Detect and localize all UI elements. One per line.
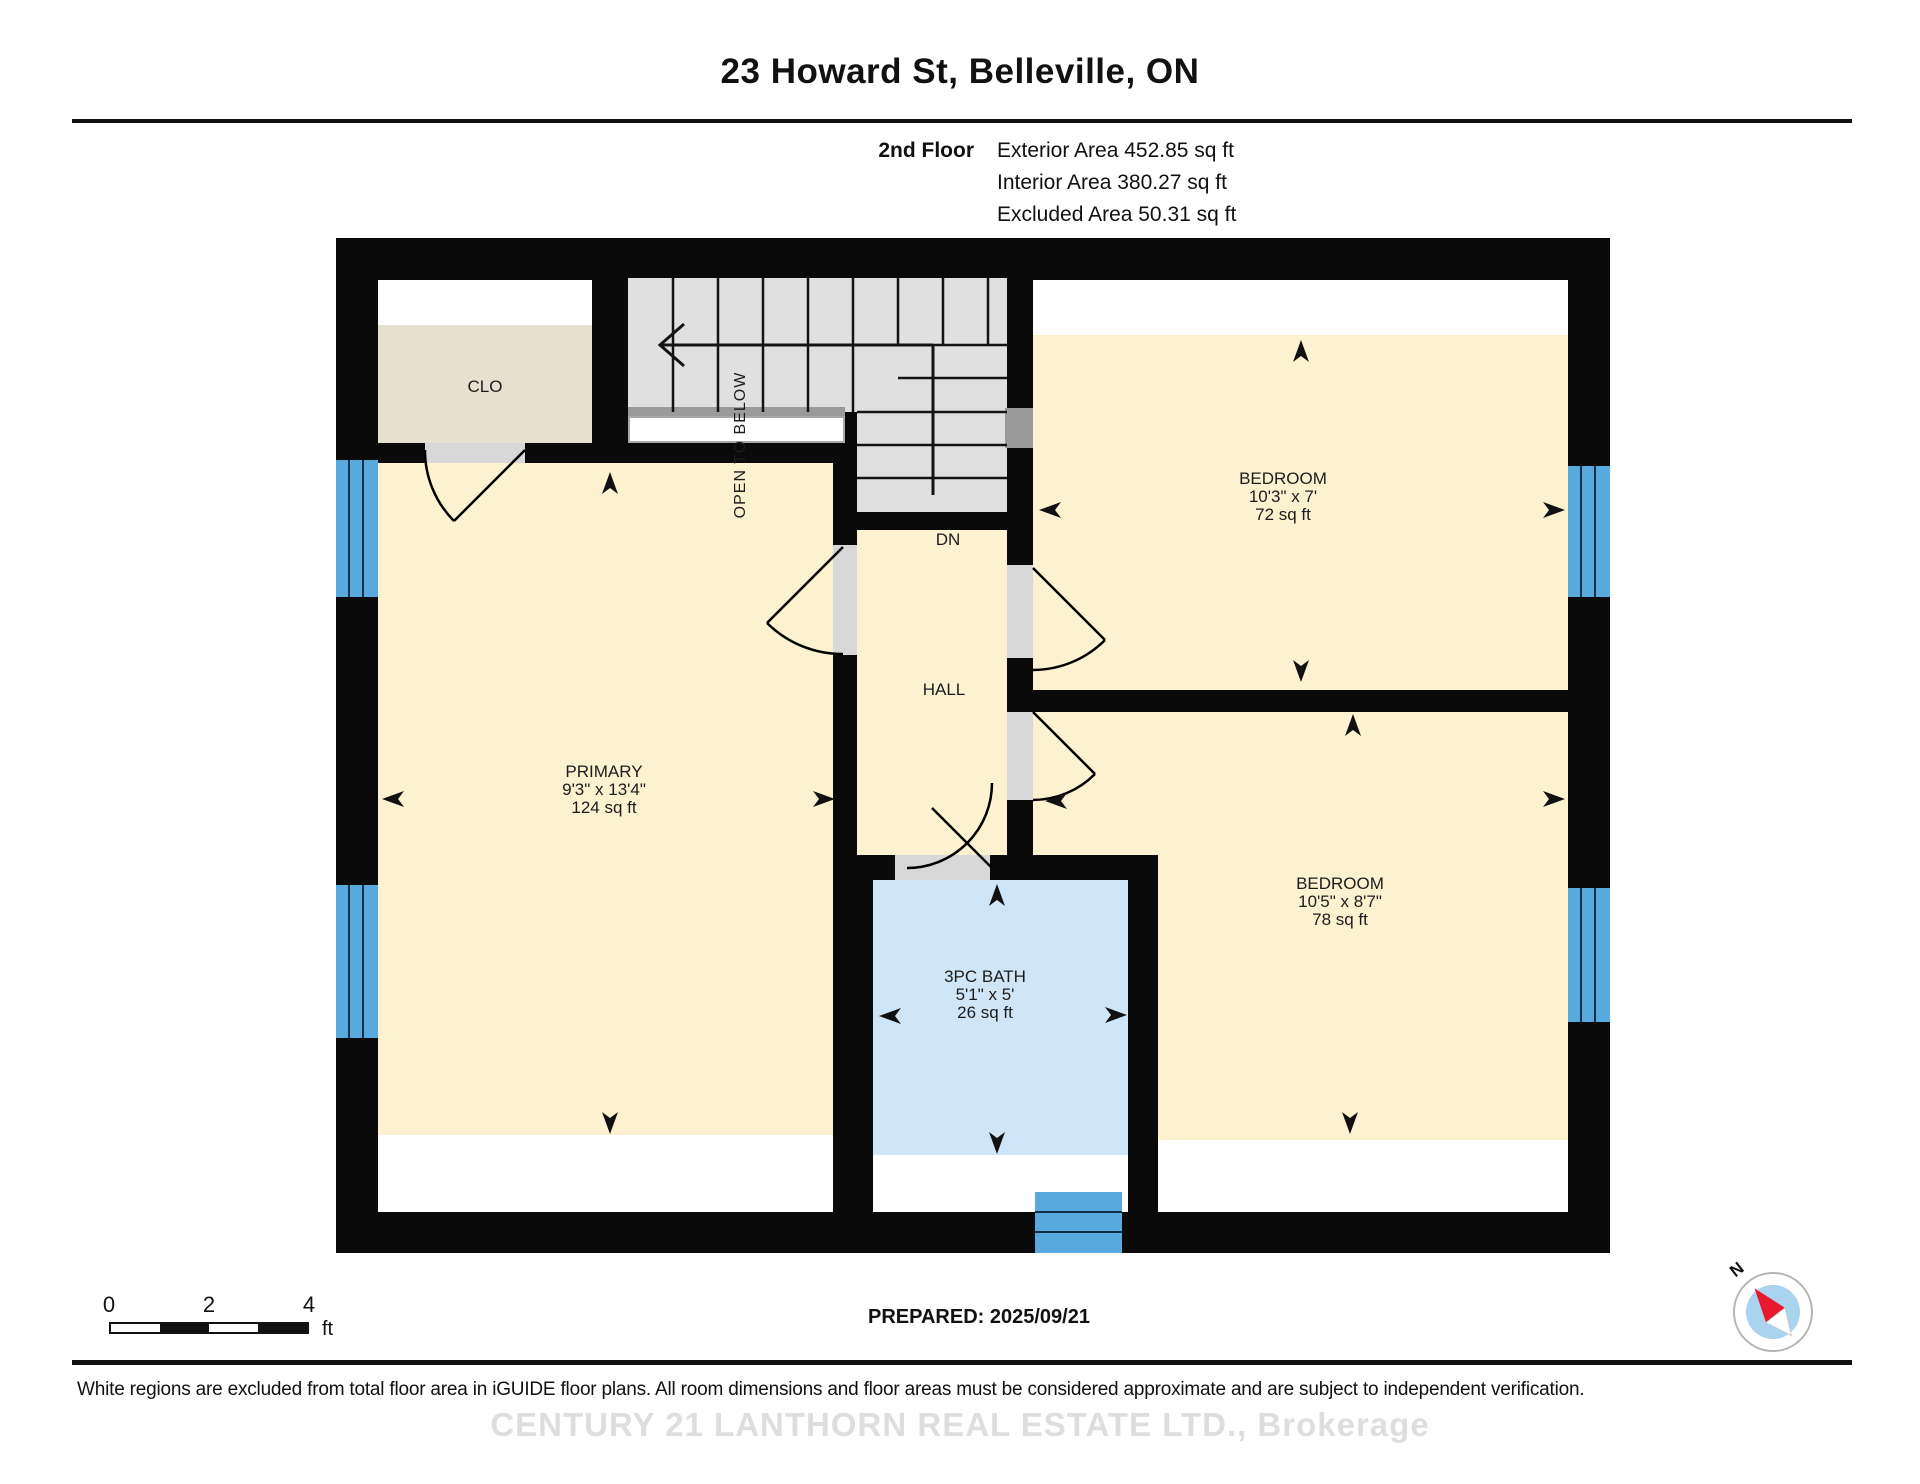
primary-arrow-down: [602, 1112, 618, 1134]
primary-room-name: PRIMARY: [504, 763, 704, 781]
measurement-arrows: [382, 340, 1565, 1154]
brokerage-watermark: CENTURY 21 LANTHORN REAL ESTATE LTD., Br…: [0, 1406, 1920, 1444]
bath-arrow-down: [989, 1132, 1005, 1154]
footer-divider: [72, 1360, 1852, 1365]
prepared-date: PREPARED: 2025/09/21: [868, 1306, 1090, 1329]
bath-door-arc: [907, 783, 992, 868]
primary-arrow-right: [813, 791, 835, 807]
scale-unit: ft: [322, 1318, 333, 1341]
label-hall: HALL: [894, 681, 994, 699]
stair-walk-line: [660, 324, 933, 495]
header-divider: [72, 119, 1852, 123]
primary-room-area: 124 sq ft: [504, 799, 704, 817]
bedroom-top-dims: 10'3" x 7': [1183, 488, 1383, 506]
interior-area-text: Interior Area 380.27 sq ft: [997, 171, 1227, 195]
excluded-area-text: Excluded Area 50.31 sq ft: [997, 203, 1236, 227]
bedroom-top-arrow-down: [1293, 660, 1309, 682]
compass: N: [1733, 1272, 1813, 1352]
label-primary: PRIMARY 9'3" x 13'4" 124 sq ft: [504, 763, 704, 817]
bath-name: 3PC BATH: [885, 968, 1085, 986]
disclaimer-text: White regions are excluded from total fl…: [77, 1379, 1637, 1401]
bath-area: 26 sq ft: [885, 1004, 1085, 1022]
scale-tick-0: 0: [94, 1292, 124, 1318]
bath-dims: 5'1" x 5': [885, 986, 1085, 1004]
primary-arrow-up: [602, 472, 618, 494]
bath-arrow-right: [1105, 1007, 1127, 1023]
scale-bar: 0 2 4 ft: [96, 1292, 396, 1364]
label-open-to-below: OPEN TO BELOW: [732, 355, 750, 535]
primary-arrow-left: [382, 791, 404, 807]
bath-arrow-up: [989, 884, 1005, 906]
label-bedroom-bottom: BEDROOM 10'5" x 8'7" 78 sq ft: [1240, 875, 1440, 929]
bedroom-top-name: BEDROOM: [1183, 470, 1383, 488]
exterior-area-text: Exterior Area 452.85 sq ft: [997, 139, 1234, 163]
bedroom-bottom-dims: 10'5" x 8'7": [1240, 893, 1440, 911]
bedroom-top-arrow-left: [1039, 502, 1061, 518]
floor-label: 2nd Floor: [860, 139, 974, 163]
bedroom-bottom-arrow-up: [1345, 714, 1361, 736]
label-closet: CLO: [435, 378, 535, 396]
bedroom-top-area: 72 sq ft: [1183, 506, 1383, 524]
primary-room-dims: 9'3" x 13'4": [504, 781, 704, 799]
compass-needle-icon: [1733, 1272, 1813, 1352]
primary-door-arc: [767, 547, 843, 654]
scale-tick-2: 2: [194, 1292, 224, 1318]
bedroom-top-arrow-right: [1543, 502, 1565, 518]
bedroom-bottom-area: 78 sq ft: [1240, 911, 1440, 929]
label-bath: 3PC BATH 5'1" x 5' 26 sq ft: [885, 968, 1085, 1022]
bedroom-bottom-name: BEDROOM: [1240, 875, 1440, 893]
bedroom-top-door-arc: [1033, 568, 1105, 670]
bedroom-bottom-arrow-down: [1342, 1112, 1358, 1134]
scale-tick-4: 4: [294, 1292, 324, 1318]
page-title: 23 Howard St, Belleville, ON: [0, 52, 1920, 92]
scale-bar-graphic: [109, 1322, 309, 1334]
bedroom-top-arrow-up: [1293, 340, 1309, 362]
closet-door-arc: [425, 450, 525, 521]
bedroom-bottom-door-arc: [1033, 712, 1095, 800]
bedroom-bottom-arrow-left: [1045, 793, 1067, 809]
floor-plan-page: 23 Howard St, Belleville, ON 2nd Floor E…: [0, 0, 1920, 1484]
stair-treads: [673, 278, 1007, 478]
floor-plan: CLO OPEN TO BELOW DN HALL PRIMARY 9'3" x…: [336, 238, 1610, 1253]
bedroom-bottom-arrow-right: [1543, 791, 1565, 807]
label-bedroom-top: BEDROOM 10'3" x 7' 72 sq ft: [1183, 470, 1383, 524]
label-stairs-down: DN: [898, 531, 998, 549]
